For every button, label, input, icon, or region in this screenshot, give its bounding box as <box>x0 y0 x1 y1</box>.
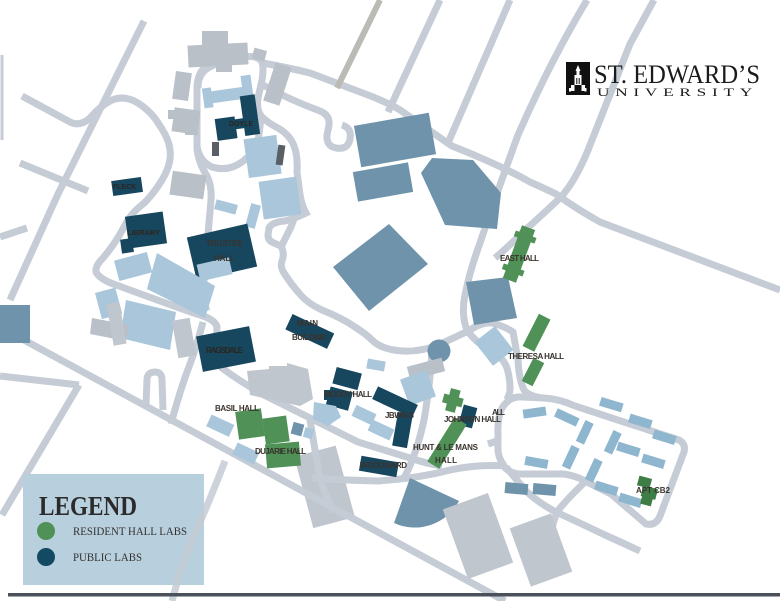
svg-text:THERESA HALL: THERESA HALL <box>508 352 564 361</box>
svg-text:HUNT & LE MANS: HUNT & LE MANS <box>413 443 479 452</box>
svg-text:PUBLIC LABS: PUBLIC LABS <box>73 552 142 564</box>
svg-text:ALL: ALL <box>492 408 505 417</box>
svg-text:WOODWARD: WOODWARD <box>360 461 407 470</box>
svg-text:TRUSTEE: TRUSTEE <box>206 239 244 248</box>
svg-text:LIBRARY: LIBRARY <box>127 228 160 237</box>
svg-text:FLECK: FLECK <box>113 184 136 191</box>
svg-text:MOODY HALL: MOODY HALL <box>324 390 372 399</box>
svg-text:LEGEND: LEGEND <box>39 491 137 521</box>
svg-text:APT CB2: APT CB2 <box>636 486 671 495</box>
svg-text:EAST HALL: EAST HALL <box>500 254 539 263</box>
svg-text:DOYLE: DOYLE <box>229 121 253 128</box>
svg-text:HALL: HALL <box>435 456 457 465</box>
svg-text:RESIDENT HALL LABS: RESIDENT HALL LABS <box>73 526 187 538</box>
svg-text:UNIVERSITY: UNIVERSITY <box>597 85 758 99</box>
svg-text:RAGSDALE: RAGSDALE <box>206 346 244 355</box>
svg-text:BUILDING: BUILDING <box>292 333 327 342</box>
svg-text:JBWN-S: JBWN-S <box>385 411 415 420</box>
svg-text:DUJARIE HALL: DUJARIE HALL <box>255 447 306 456</box>
svg-text:HALL: HALL <box>214 254 235 263</box>
svg-text:MAIN: MAIN <box>297 319 318 328</box>
svg-text:BASIL HALL: BASIL HALL <box>215 404 259 413</box>
